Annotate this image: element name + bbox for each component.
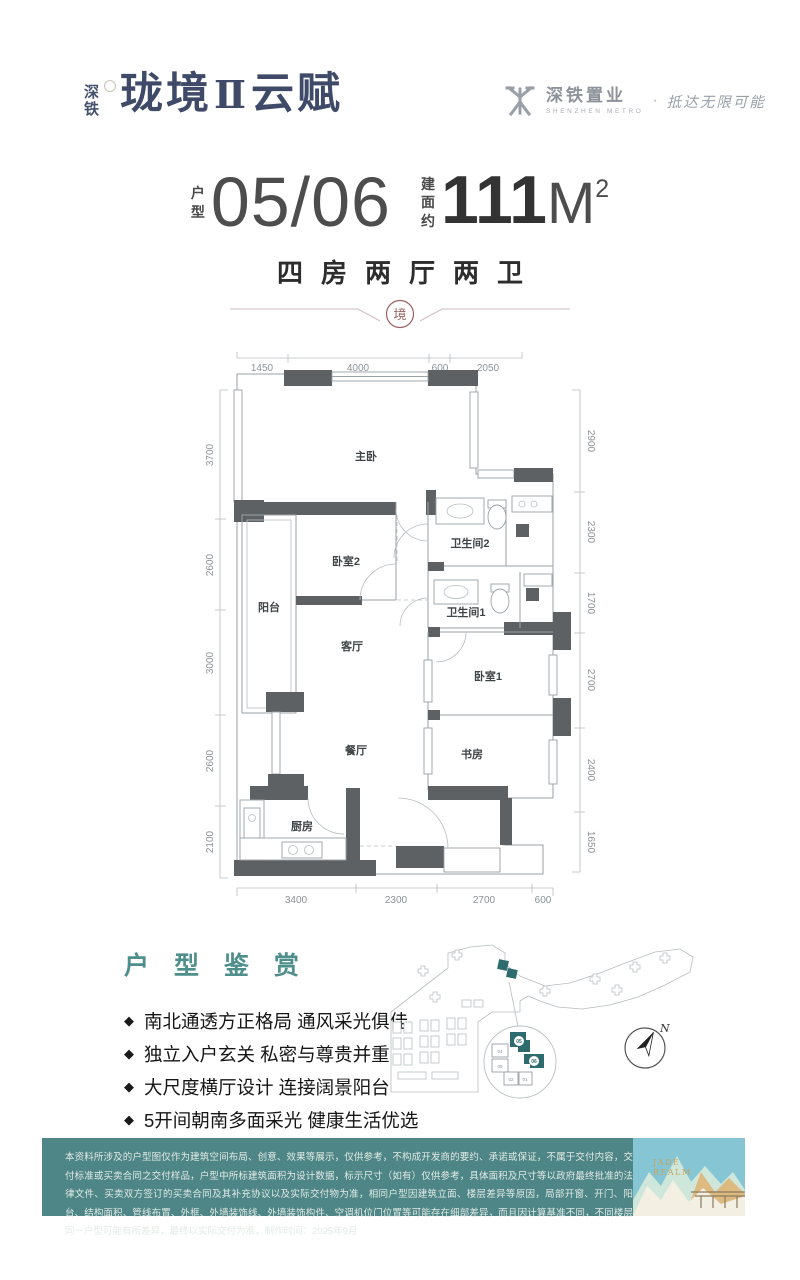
- room-label-study: 书房: [461, 747, 483, 761]
- feature-item: ◆5开间朝南多面采光 健康生活优选: [124, 1103, 424, 1136]
- unit-title-block: 户型 05/06 建面约 111M2 四房两厅两卫: [0, 168, 800, 290]
- compass: N: [625, 1022, 670, 1068]
- room-label-bath2: 卫生间2: [450, 536, 489, 550]
- unit-01-label: 01: [522, 1077, 528, 1082]
- separator-dot: ·: [652, 92, 657, 110]
- highlight-towers: [497, 959, 518, 979]
- footer-band: 本资料所涉及的户型图仅作为建筑空间布局、创意、效果等展示，仅供参考，不构成开发商…: [42, 1138, 745, 1216]
- leader-line: [509, 982, 518, 1026]
- room-label-balcony: 阳台: [258, 600, 280, 614]
- seal-character: 境: [393, 308, 406, 323]
- brand-seal-icon: [104, 80, 116, 92]
- artwork-title: JADE REALM: [653, 1158, 692, 1178]
- dim-label: 2700: [585, 669, 596, 692]
- poster-page: 深 铁 珑境Ⅱ云赋 深铁置业 SHENZHEN METRO · 抵达无限可能 户…: [0, 0, 800, 1280]
- room-label-living: 客厅: [340, 639, 363, 653]
- dim-label: 3700: [205, 443, 216, 466]
- dim-label: 1450: [251, 363, 274, 374]
- floorplan-walls: [234, 370, 571, 876]
- dim-label: 2050: [477, 363, 500, 374]
- room-label-bed1: 卧室1: [474, 669, 502, 683]
- developer-name: 深铁置业: [546, 87, 643, 104]
- footer-artwork: JADE REALM: [633, 1138, 745, 1216]
- features-heading: 户 型 鉴 赏: [124, 946, 424, 982]
- room-label-master: 主卧: [355, 449, 377, 463]
- section-divider: 境: [230, 295, 570, 335]
- dim-label: 2300: [385, 895, 408, 906]
- feature-item: ◆大尺度横厅设计 连接阔景阳台: [124, 1070, 424, 1103]
- dim-label: 2600: [205, 749, 216, 772]
- developer-slogan: 抵达无限可能: [667, 91, 766, 112]
- brand-logo-prefix: 深 铁: [84, 84, 99, 119]
- unit-number: 05/06: [211, 169, 391, 236]
- feature-item: ◆南北通透方正格局 通风采光俱佳: [124, 1004, 424, 1037]
- dim-label: 3000: [205, 651, 216, 674]
- floorplan: 1450 4000 600 2050 3700 2600 3000 2600 2…: [198, 348, 600, 910]
- room-layout-summary: 四房两厅两卫: [0, 253, 800, 290]
- room-label-kitchen: 厨房: [291, 819, 313, 833]
- unit-05-label: 05: [497, 1064, 503, 1069]
- brand-logo-roman: Ⅱ: [214, 72, 249, 117]
- dim-label: 1700: [585, 592, 596, 615]
- unit-type-label: 户型: [191, 184, 205, 220]
- dim-label: 2400: [585, 759, 596, 782]
- features-section: 户 型 鉴 赏 ◆南北通透方正格局 通风采光俱佳 ◆独立入户玄关 私密与尊贵并重…: [124, 946, 424, 1136]
- site-plan: 05 06 04 05 02 01 N: [385, 938, 700, 1115]
- dim-label: 2900: [585, 430, 596, 453]
- unit-02-label: 02: [508, 1077, 514, 1082]
- area-value: 111M2: [441, 168, 609, 237]
- room-label-bath1: 卫生间1: [446, 605, 485, 619]
- tower-05-label: 05: [516, 1039, 522, 1045]
- disclaimer-text: 本资料所涉及的户型图仅作为建筑空间布局、创意、效果等展示，仅供参考，不构成开发商…: [65, 1149, 633, 1242]
- dim-label: 600: [535, 895, 552, 906]
- dim-label: 2300: [585, 521, 596, 544]
- brand-logo: 深 铁 珑境Ⅱ云赋: [84, 70, 343, 119]
- diamond-bullet-icon: ◆: [124, 1046, 134, 1062]
- feature-item: ◆独立入户玄关 私密与尊贵并重: [124, 1037, 424, 1070]
- dim-label: 2600: [205, 553, 216, 576]
- unit-04-label: 04: [497, 1049, 503, 1054]
- tower-06-label: 06: [531, 1059, 537, 1065]
- developer-logo: 深铁置业 SHENZHEN METRO · 抵达无限可能: [503, 84, 766, 118]
- dim-label: 3400: [285, 895, 308, 906]
- bathroom-fixtures: [434, 496, 552, 613]
- diamond-bullet-icon: ◆: [124, 1013, 134, 1029]
- brand-logo-name: 珑境Ⅱ云赋: [120, 70, 343, 119]
- diamond-bullet-icon: ◆: [124, 1079, 134, 1095]
- dim-label: 2100: [205, 830, 216, 853]
- diamond-bullet-icon: ◆: [124, 1112, 134, 1128]
- dim-label: 2700: [473, 895, 496, 906]
- developer-name-en: SHENZHEN METRO: [546, 108, 643, 115]
- features-list: ◆南北通透方正格局 通风采光俱佳 ◆独立入户玄关 私密与尊贵并重 ◆大尺度横厅设…: [124, 1004, 424, 1136]
- room-label-dining: 餐厅: [344, 743, 367, 757]
- metro-icon: [503, 84, 537, 118]
- dim-label: 1650: [585, 831, 596, 854]
- compass-n-label: N: [659, 1022, 670, 1035]
- room-label-bed2: 卧室2: [332, 554, 360, 568]
- area-label: 建面约: [421, 175, 435, 230]
